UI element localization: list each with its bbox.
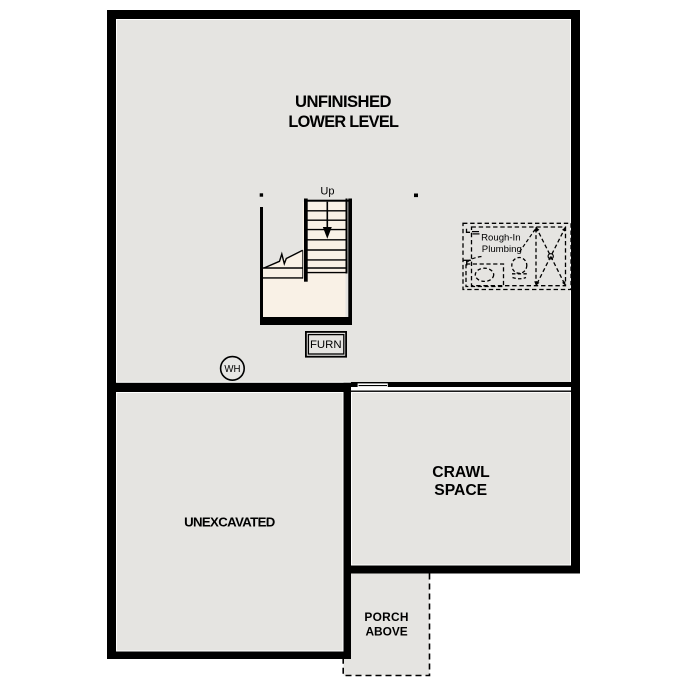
svg-text:SPACE: SPACE bbox=[434, 482, 487, 499]
svg-text:UNFINISHED: UNFINISHED bbox=[295, 92, 391, 111]
svg-text:FURN: FURN bbox=[310, 339, 342, 351]
svg-text:UNEXCAVATED: UNEXCAVATED bbox=[184, 514, 275, 529]
svg-text:ABOVE: ABOVE bbox=[365, 624, 407, 638]
svg-text:Up: Up bbox=[320, 186, 334, 198]
svg-text:LOWER LEVEL: LOWER LEVEL bbox=[288, 113, 399, 131]
svg-text:Plumbing: Plumbing bbox=[482, 244, 522, 255]
svg-text:WH: WH bbox=[224, 364, 240, 375]
svg-text:PORCH: PORCH bbox=[364, 610, 408, 624]
svg-text:CRAWL: CRAWL bbox=[432, 464, 490, 481]
svg-text:Rough-In: Rough-In bbox=[481, 233, 520, 244]
